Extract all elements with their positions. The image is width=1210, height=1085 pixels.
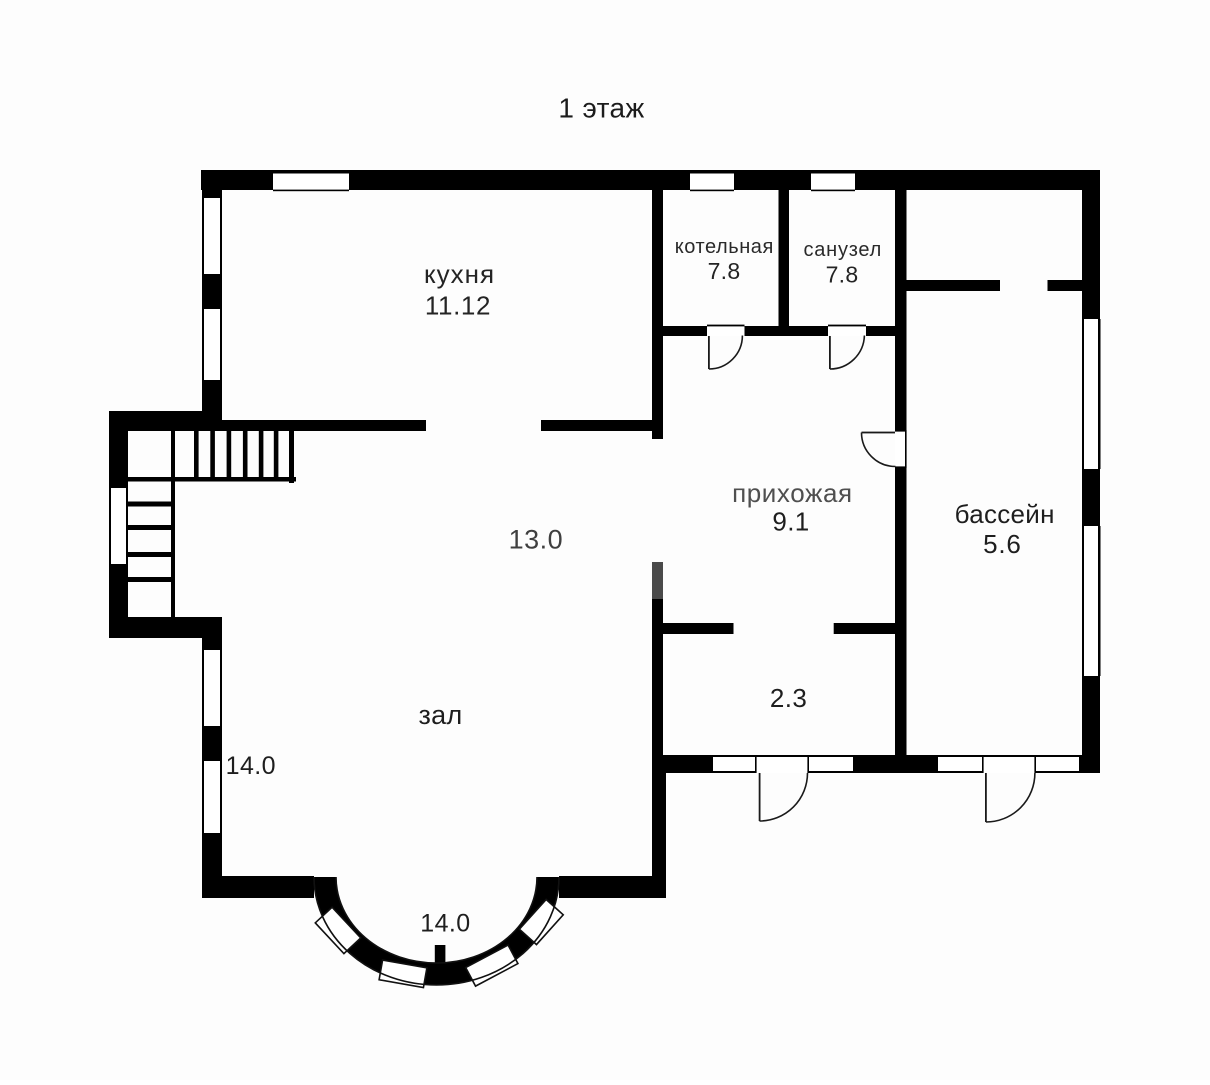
svg-text:11.12: 11.12 — [425, 291, 491, 321]
svg-text:1 этаж: 1 этаж — [558, 93, 644, 124]
svg-text:2.3: 2.3 — [770, 683, 807, 713]
svg-text:зал: зал — [418, 700, 462, 730]
svg-text:кухня: кухня — [424, 259, 495, 289]
svg-text:прихожая: прихожая — [732, 478, 853, 508]
svg-text:14.0: 14.0 — [420, 910, 470, 938]
svg-text:бассейн: бассейн — [955, 499, 1055, 529]
svg-text:котельная: котельная — [675, 236, 774, 258]
svg-text:9.1: 9.1 — [772, 507, 809, 537]
svg-text:5.6: 5.6 — [983, 529, 1022, 559]
svg-text:13.0: 13.0 — [509, 525, 564, 555]
svg-text:14.0: 14.0 — [226, 752, 276, 780]
svg-text:санузел: санузел — [804, 239, 883, 261]
svg-text:7.8: 7.8 — [708, 258, 741, 284]
svg-text:7.8: 7.8 — [826, 262, 859, 288]
